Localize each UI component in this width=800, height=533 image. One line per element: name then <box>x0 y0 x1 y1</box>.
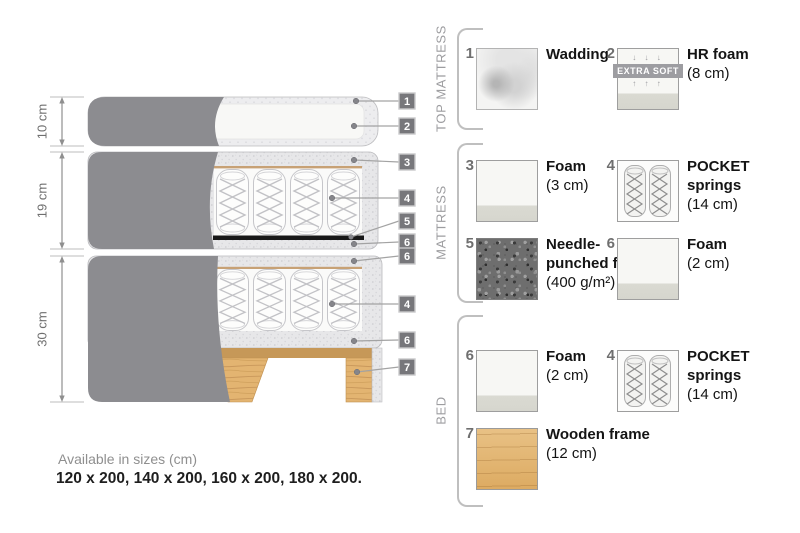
legend-item-size: (14 cm) <box>687 195 787 214</box>
pocket-springs-swatch <box>617 350 679 412</box>
top-mattress-layer <box>88 97 378 146</box>
wooden-rail <box>216 348 378 358</box>
legend-item-size: (8 cm) <box>687 64 787 83</box>
legend-item-size: (14 cm) <box>687 385 787 404</box>
legend-item-number: 5 <box>460 235 474 252</box>
available-sizes-values: 120 x 200, 140 x 200, 160 x 200, 180 x 2… <box>56 470 362 488</box>
section-label-mattress: MATTRESS <box>434 163 449 283</box>
foam-swatch <box>617 238 679 300</box>
svg-text:6: 6 <box>404 251 410 263</box>
legend-item-name: Wooden frame <box>546 425 746 444</box>
callout-badge-6b: 6 <box>399 248 415 264</box>
wooden-leg-middle <box>222 358 268 402</box>
extra-soft-badge: EXTRA SOFT <box>613 64 683 78</box>
callout-badge-2: 2 <box>399 118 415 134</box>
legend-item-pocket-springs-bed: 4 POCKET springs (14 cm) <box>601 350 787 412</box>
legend-item-number: 2 <box>601 45 615 62</box>
svg-text:1: 1 <box>404 96 410 108</box>
legend-item-number: 6 <box>460 347 474 364</box>
legend-item-size: (2 cm) <box>687 254 787 273</box>
svg-text:6: 6 <box>404 237 410 249</box>
legend-item-hr-foam: 2 ↓ ↓ ↓ EXTRA SOFT ↑ ↑ ↑ HR foam (8 cm) <box>601 48 787 110</box>
foam-swatch <box>476 160 538 222</box>
foam-swatch <box>476 350 538 412</box>
legend-item-number: 4 <box>601 347 615 364</box>
callout-badge-4b: 4 <box>399 296 415 312</box>
legend-item-number: 3 <box>460 157 474 174</box>
svg-text:4: 4 <box>404 299 411 311</box>
hr-foam-swatch: ↓ ↓ ↓ EXTRA SOFT ↑ ↑ ↑ <box>617 48 679 110</box>
wadding-swatch <box>476 48 538 110</box>
callout-badge-4: 4 <box>399 190 415 206</box>
bed-construction-infographic: 10 cm 19 cm 30 cm <box>0 0 800 533</box>
mattress-layer <box>88 152 378 249</box>
dimension-label: 30 cm <box>34 311 49 346</box>
callout-badge-6c: 6 <box>399 332 415 348</box>
legend-item-number: 4 <box>601 157 615 174</box>
compression-arrows-up: ↑ ↑ ↑ <box>632 79 663 89</box>
legend-item-wooden-frame: 7 Wooden frame (12 cm) <box>460 428 746 490</box>
compression-arrows-down: ↓ ↓ ↓ <box>632 53 663 63</box>
legend-item-name: Foam <box>687 235 787 254</box>
callout-badge-3: 3 <box>399 154 415 170</box>
pocket-springs-swatch <box>617 160 679 222</box>
wooden-leg-right <box>346 358 372 402</box>
bed-base-layer <box>88 256 382 402</box>
section-label-top-mattress: TOP MATTRESS <box>434 19 449 139</box>
wood-swatch <box>476 428 538 490</box>
dimension-19cm: 19 cm <box>34 152 84 249</box>
legend-item-name: POCKET springs <box>687 157 787 195</box>
legend-item-name: HR foam <box>687 45 787 64</box>
svg-text:7: 7 <box>404 362 410 374</box>
dimension-10cm: 10 cm <box>34 97 84 146</box>
dimension-30cm: 30 cm <box>34 256 84 402</box>
legend-item-name: POCKET springs <box>687 347 787 385</box>
legend-item-size: (12 cm) <box>546 444 746 463</box>
callout-badge-5: 5 <box>399 213 415 229</box>
svg-text:6: 6 <box>404 335 410 347</box>
legend-item-foam-2cm: 6 Foam (2 cm) <box>601 238 787 300</box>
legend-item-number: 6 <box>601 235 615 252</box>
dimension-label: 10 cm <box>34 104 49 139</box>
felt-swatch <box>476 238 538 300</box>
svg-text:3: 3 <box>404 157 410 169</box>
available-sizes-title: Available in sizes (cm) <box>58 451 197 467</box>
legend-item-number: 1 <box>460 45 474 62</box>
dimension-label: 19 cm <box>34 183 49 218</box>
callout-badge-7: 7 <box>399 359 415 375</box>
pocket-springs-icon <box>619 162 677 220</box>
svg-text:5: 5 <box>404 216 410 228</box>
section-label-bed: BED <box>434 351 449 471</box>
svg-text:4: 4 <box>404 193 411 205</box>
legend-item-pocket-springs: 4 POCKET springs (14 cm) <box>601 160 787 222</box>
callout-badge-1: 1 <box>399 93 415 109</box>
callout-badges: 1 2 3 4 5 6 6 <box>399 93 415 375</box>
pocket-springs-icon <box>619 352 677 410</box>
svg-text:2: 2 <box>404 121 410 133</box>
legend-item-number: 7 <box>460 425 474 442</box>
